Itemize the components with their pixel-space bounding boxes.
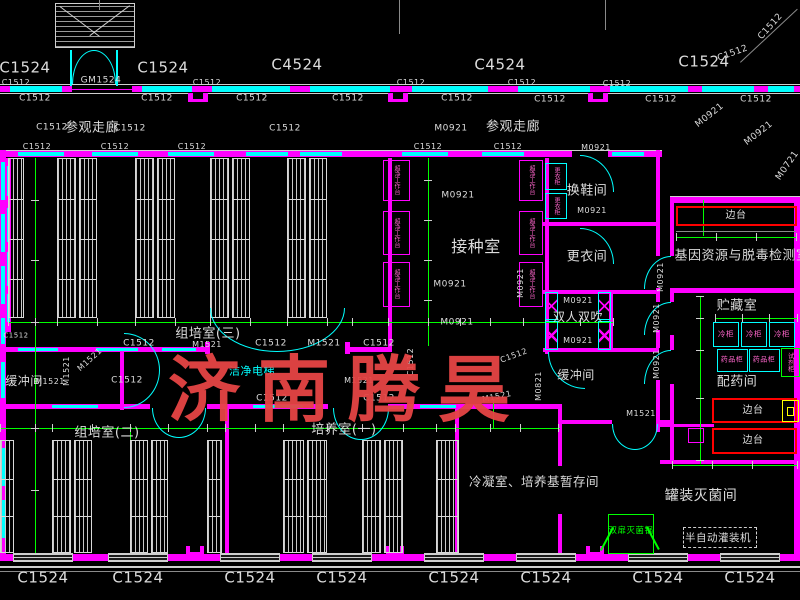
rack-shelf-divider xyxy=(233,279,250,280)
culture-rack xyxy=(384,440,403,553)
equip-freezer: 冷柜 xyxy=(746,330,762,338)
tag-label: C4524 xyxy=(271,58,322,73)
dim-tick xyxy=(742,314,743,322)
window-hatch xyxy=(108,553,168,562)
wall-segment xyxy=(670,288,800,293)
rack-shelf-divider xyxy=(1,516,13,517)
rack-shelf-divider xyxy=(211,279,228,280)
tag-label: C1512 xyxy=(269,125,301,134)
room-visiting-corridor-right: 参观走廊 xyxy=(486,121,540,134)
tag-label: M0921 xyxy=(743,120,775,148)
rack-shelf-divider xyxy=(288,279,305,280)
window-hatch xyxy=(312,553,372,562)
tag-label: C1512 xyxy=(193,79,221,87)
dim-tick xyxy=(769,314,770,322)
room-storage: 贮藏室 xyxy=(717,300,758,313)
tag-label: C1524 xyxy=(17,571,68,586)
wall-segment xyxy=(660,460,800,464)
dim-tick xyxy=(31,490,39,491)
window-segment xyxy=(18,152,64,156)
culture-rack xyxy=(74,440,93,553)
equip-medicine-cabinet: 药品柜 xyxy=(721,357,744,364)
tag-label: C1512 xyxy=(414,143,442,151)
window-hatch xyxy=(628,553,688,562)
cad-floor-plan: 济南腾昊 参观走廊参观走廊接种室换鞋间更衣间双人双吹缓冲间缓冲间组培室(三)组培… xyxy=(0,0,800,600)
room-tissue-culture-2: 组培室(二) xyxy=(74,427,139,440)
tag-label: M0921 xyxy=(433,281,466,290)
watermark-text: 济南腾昊 xyxy=(168,331,564,436)
culture-rack xyxy=(57,158,76,318)
culture-rack xyxy=(207,440,222,553)
rack-shelf-divider xyxy=(437,516,458,517)
dim-tick xyxy=(696,318,704,319)
room-change-clothes: 更衣间 xyxy=(567,251,608,264)
wall-segment xyxy=(290,86,310,92)
window-segment xyxy=(212,86,290,92)
rack-shelf-divider xyxy=(363,479,380,480)
tag-label: C1512 xyxy=(36,124,68,133)
wall-opening xyxy=(590,546,600,552)
rack-shelf-divider xyxy=(211,239,228,240)
tag-label: C1512 xyxy=(441,95,473,104)
equip-freezer: 冷柜 xyxy=(718,330,734,338)
window-segment xyxy=(300,152,342,156)
dim-tick xyxy=(135,318,136,326)
equip-wardrobe: 更衣柜 xyxy=(553,167,559,185)
dim-tick xyxy=(31,200,39,201)
rack-shelf-divider xyxy=(211,199,228,200)
window-segment xyxy=(92,152,138,156)
window-hatch xyxy=(516,553,576,562)
equip-clean-bench: 超净工作台 xyxy=(528,165,534,195)
rack-shelf-divider xyxy=(284,479,303,480)
tag-label: M1521 xyxy=(63,356,71,386)
tag-label: C1512 xyxy=(141,95,173,104)
equipment-box xyxy=(688,428,704,443)
dim-tick xyxy=(31,428,39,429)
equip-clean-bench: 超净工作台 xyxy=(393,165,399,195)
rack-shelf-divider xyxy=(288,239,305,240)
room-inoculation: 接种室 xyxy=(451,239,501,255)
tag-label: GM1524 xyxy=(81,77,122,86)
tag-label: C1512 xyxy=(111,377,143,386)
tag-label: C1512 xyxy=(397,79,425,87)
dim-tick xyxy=(424,220,432,221)
rack-shelf-divider xyxy=(288,199,305,200)
dim-tick xyxy=(175,318,176,326)
rack-shelf-divider xyxy=(9,199,23,200)
tag-label: M0921 xyxy=(577,207,607,215)
window-hatch xyxy=(424,553,484,562)
tag-label: C1512 xyxy=(717,44,750,63)
window-hatch xyxy=(720,553,780,562)
window-segment xyxy=(168,152,214,156)
wall-segment xyxy=(660,424,714,427)
rack-shelf-divider xyxy=(75,479,92,480)
dim-tick xyxy=(613,318,614,326)
tag-label: C1512 xyxy=(494,143,522,151)
rack-shelf-divider xyxy=(233,239,250,240)
culture-rack xyxy=(52,440,71,553)
dim-tick xyxy=(424,180,432,181)
rack-shelf-divider xyxy=(9,279,23,280)
equip-clean-bench: 超净工作台 xyxy=(393,269,399,299)
equip-wardrobe: 更衣柜 xyxy=(553,197,559,215)
line xyxy=(676,231,796,232)
tag-label: M0921 xyxy=(440,319,473,328)
window-segment xyxy=(142,86,192,92)
rack-shelf-divider xyxy=(136,279,153,280)
room-gene-resource: 基因资源与脱毒检测室 xyxy=(674,250,800,263)
wall-segment xyxy=(688,86,702,92)
wall-segment xyxy=(62,86,72,92)
dim-tick xyxy=(31,260,39,261)
tag-label: C1524 xyxy=(428,571,479,586)
dim-tick xyxy=(0,424,1,432)
dim-tick xyxy=(696,296,704,297)
dim-tick xyxy=(52,424,53,432)
equip-freezer: 冷柜 xyxy=(774,330,790,338)
tag-label: M0921 xyxy=(441,192,474,201)
rack-shelf-divider xyxy=(363,516,380,517)
tag-label: M1521 xyxy=(626,410,656,418)
window-segment xyxy=(482,152,524,156)
tag-label: C1512 xyxy=(508,79,536,87)
tag-label: C1524 xyxy=(316,571,367,586)
rack-shelf-divider xyxy=(1,479,13,480)
tag-label: C1512 xyxy=(123,340,155,349)
wall-segment xyxy=(670,335,674,350)
equip-clean-bench: 超净工作台 xyxy=(528,218,534,248)
window-segment xyxy=(52,405,98,408)
wall-segment xyxy=(562,420,612,424)
rack-shelf-divider xyxy=(152,516,168,517)
equip-side-bench: 边台 xyxy=(743,406,764,416)
tag-label: M0921 xyxy=(434,125,467,134)
rack-shelf-divider xyxy=(308,516,327,517)
dim-tick xyxy=(57,318,58,326)
tag-label: C1524 xyxy=(632,571,683,586)
window-segment xyxy=(702,86,754,92)
tag-label: M0921 xyxy=(517,268,525,298)
tag-label: M0921 xyxy=(563,297,593,305)
rack-shelf-divider xyxy=(233,199,250,200)
dim-tick xyxy=(428,318,429,326)
line xyxy=(99,0,100,10)
rack-shelf-divider xyxy=(385,516,402,517)
wall-segment xyxy=(656,150,660,256)
rack-shelf-divider xyxy=(158,239,175,240)
tag-label: C1524 xyxy=(520,571,571,586)
wall-segment xyxy=(658,420,674,424)
room-visiting-corridor-left: 参观走廊 xyxy=(65,122,119,135)
tag-label: C1512 xyxy=(101,143,129,151)
wall-segment xyxy=(132,86,142,92)
dim-tick xyxy=(424,300,432,301)
tag-label: M0721 xyxy=(775,150,800,182)
rack-shelf-divider xyxy=(158,199,175,200)
dim-tick xyxy=(715,314,716,322)
culture-rack xyxy=(287,158,306,318)
tag-label: C1512 xyxy=(236,95,268,104)
tag-label: C1524 xyxy=(0,61,51,76)
door-arc xyxy=(612,424,635,450)
wall-segment xyxy=(72,89,132,90)
room-shoe-change: 换鞋间 xyxy=(567,185,608,198)
air-shower-unit xyxy=(598,321,611,350)
rack-shelf-divider xyxy=(136,239,153,240)
culture-rack xyxy=(232,158,251,318)
wall-segment xyxy=(558,514,562,556)
dim-tick xyxy=(676,233,677,241)
tag-label: C1512 xyxy=(23,143,51,151)
rack-shelf-divider xyxy=(80,239,97,240)
tag-label: C1512 xyxy=(19,95,51,104)
rack-shelf-divider xyxy=(75,516,92,517)
rack-shelf-divider xyxy=(310,279,327,280)
tag-label: C1512 xyxy=(114,125,146,134)
culture-rack xyxy=(436,440,459,553)
wall-opening xyxy=(593,93,603,99)
wall-segment xyxy=(670,197,674,256)
grid-line xyxy=(715,318,798,319)
window-segment xyxy=(1,214,5,252)
room-canning-sterilization: 罐装灭菌间 xyxy=(665,489,738,503)
dim-tick xyxy=(752,461,753,469)
wall-opening xyxy=(193,93,203,99)
rack-shelf-divider xyxy=(80,279,97,280)
rack-shelf-divider xyxy=(385,479,402,480)
dim-tick xyxy=(712,461,713,469)
rack-shelf-divider xyxy=(58,279,75,280)
tag-label: M0921 xyxy=(657,262,665,292)
tag-label: M0921 xyxy=(694,102,726,130)
rack-shelf-divider xyxy=(131,479,147,480)
tag-label: C1512 xyxy=(332,95,364,104)
dim-tick xyxy=(696,350,704,351)
dim-tick xyxy=(672,461,673,469)
tag-label: C1524 xyxy=(112,571,163,586)
equip-clean-bench: 超净工作台 xyxy=(528,269,534,299)
sink-symbol xyxy=(787,407,794,416)
tag-label: M0921 xyxy=(581,144,611,152)
equip-side-bench: 边台 xyxy=(743,436,764,446)
line xyxy=(399,0,400,34)
rack-shelf-divider xyxy=(152,479,168,480)
wall-opening xyxy=(190,546,200,552)
wall-segment xyxy=(754,86,768,92)
equip-clean-bench: 超净工作台 xyxy=(393,218,399,248)
dim-tick xyxy=(424,260,432,261)
equip-medicine-cabinet: 药品柜 xyxy=(753,357,776,364)
grid-line xyxy=(676,237,796,238)
equip-double-door-sterilizer: 双扉灭菌锅 xyxy=(608,527,653,536)
dim-tick xyxy=(796,233,797,241)
dim-tick xyxy=(210,318,211,326)
window-segment xyxy=(18,348,58,351)
culture-rack xyxy=(135,158,154,318)
rack-shelf-divider xyxy=(53,516,70,517)
equip-reagent-cabinet: 试剂柜 xyxy=(787,352,794,372)
rack-shelf-divider xyxy=(284,516,303,517)
dim-tick xyxy=(696,460,704,461)
dim-tick xyxy=(97,318,98,326)
equip-semi-auto-filler: 半自动灌装机 xyxy=(685,533,751,544)
tag-label: C1524 xyxy=(224,571,275,586)
window-hatch xyxy=(13,553,73,562)
rack-shelf-divider xyxy=(80,199,97,200)
tag-label: C1524 xyxy=(724,571,775,586)
wall-opening xyxy=(393,93,403,99)
culture-rack xyxy=(130,440,148,553)
tag-label: C1512 xyxy=(645,96,677,105)
window-hatch xyxy=(220,553,280,562)
culture-rack xyxy=(8,158,24,318)
culture-rack xyxy=(362,440,381,553)
tag-label: C1512 xyxy=(757,12,785,42)
tag-label: C1512 xyxy=(3,333,28,340)
rack-shelf-divider xyxy=(9,239,23,240)
window-segment xyxy=(310,86,390,92)
window-segment xyxy=(1,266,5,304)
dim-tick xyxy=(352,318,353,326)
rack-shelf-divider xyxy=(208,479,221,480)
rack-shelf-divider xyxy=(131,516,147,517)
grid-line xyxy=(35,158,36,554)
room-medicine-prep: 配药间 xyxy=(717,376,758,389)
room-air-shower: 双人双吹 xyxy=(553,311,603,323)
rack-shelf-divider xyxy=(308,479,327,480)
culture-rack xyxy=(157,158,176,318)
line xyxy=(605,0,606,30)
window-segment xyxy=(246,152,288,156)
culture-rack xyxy=(307,440,328,553)
door-arc xyxy=(635,424,658,450)
culture-rack xyxy=(79,158,98,318)
tag-label: C4524 xyxy=(474,58,525,73)
tag-label: M0921 xyxy=(653,349,661,379)
dim-tick xyxy=(523,318,524,326)
dim-tick xyxy=(696,398,704,399)
window-segment xyxy=(402,152,448,156)
equip-side-bench: 边台 xyxy=(726,211,747,221)
window-segment xyxy=(612,152,644,156)
dim-tick xyxy=(388,318,389,326)
tag-label: C1512 xyxy=(740,96,772,105)
rack-shelf-divider xyxy=(53,479,70,480)
culture-rack xyxy=(283,440,304,553)
rack-shelf-divider xyxy=(58,239,75,240)
dim-tick xyxy=(797,461,798,469)
dim-tick xyxy=(490,318,491,326)
culture-rack xyxy=(151,440,169,553)
rack-shelf-divider xyxy=(310,239,327,240)
wall-segment xyxy=(670,197,800,203)
tag-label: M0921 xyxy=(653,303,661,333)
rack-shelf-divider xyxy=(158,279,175,280)
dim-tick xyxy=(31,322,39,323)
tag-label: C1512 xyxy=(534,96,566,105)
culture-rack xyxy=(210,158,229,318)
window-segment xyxy=(768,86,794,92)
rack-shelf-divider xyxy=(437,479,458,480)
dim-tick xyxy=(756,233,757,241)
dim-tick xyxy=(797,314,798,322)
rack-shelf-divider xyxy=(58,199,75,200)
window-segment xyxy=(1,162,5,200)
tag-label: M0921 xyxy=(563,337,593,345)
tag-label: C1512 xyxy=(2,79,30,87)
tag-label: C1512 xyxy=(603,80,631,88)
rack-shelf-divider xyxy=(136,199,153,200)
grid-line xyxy=(672,465,798,466)
tag-label: C1524 xyxy=(137,61,188,76)
culture-rack xyxy=(309,158,328,318)
tag-label: M1521 xyxy=(35,378,65,386)
rack-shelf-divider xyxy=(208,516,221,517)
wall-segment xyxy=(543,222,659,226)
room-condense-media: 冷凝室、培养基暂存间 xyxy=(469,476,599,489)
wall-segment xyxy=(794,86,800,92)
rack-shelf-divider xyxy=(310,199,327,200)
culture-rack xyxy=(0,440,14,553)
tag-label: C1512 xyxy=(178,143,206,151)
dim-tick xyxy=(716,233,717,241)
dim-tick xyxy=(8,318,9,326)
